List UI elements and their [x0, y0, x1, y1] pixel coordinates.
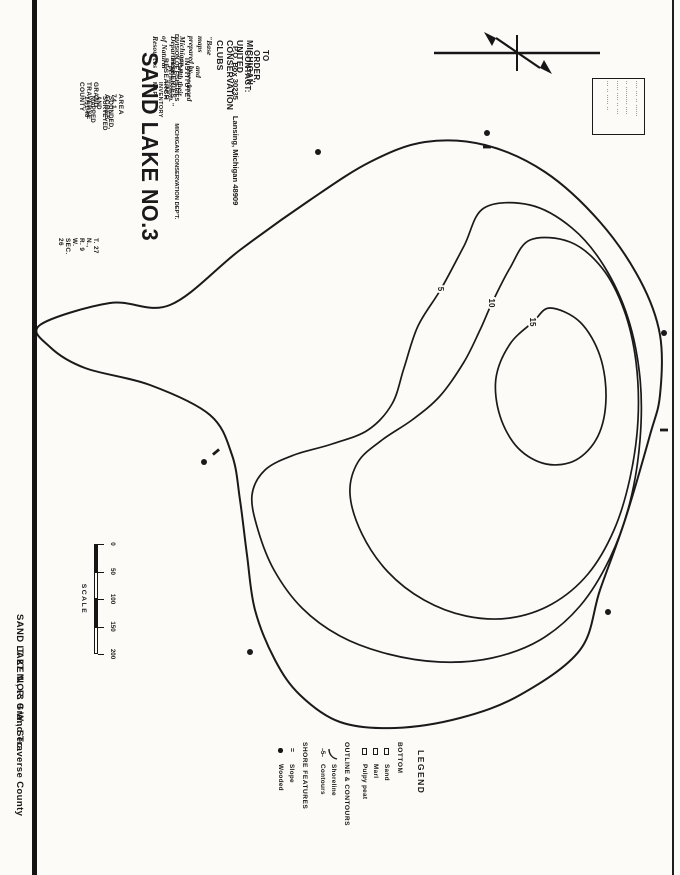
bottom-type-square-icon — [373, 748, 379, 755]
depth-contour-15ft — [495, 308, 606, 465]
slope-shore-dash — [660, 429, 668, 432]
scale-tick-mark — [98, 572, 104, 573]
stamp-line: ····· ···· ·· ··· — [612, 81, 622, 132]
contour-line-icon: –5– — [320, 748, 326, 757]
legend-item: –5–Contours — [317, 748, 328, 867]
scale-bar-segment — [94, 627, 98, 655]
scale-tick-mark — [98, 544, 104, 545]
legend-section-heading: OUTLINE & CONTOURS — [343, 742, 350, 867]
wooded-shore-dot — [201, 459, 207, 465]
wooded-dot-icon — [278, 748, 283, 753]
slope-shore-dash — [212, 448, 220, 455]
shoreline-curve-icon — [329, 748, 339, 761]
legend-title: LEGEND — [416, 750, 426, 867]
stamp-line: ·· ········· ···· — [622, 81, 632, 132]
north-arrow-needle-head — [540, 60, 552, 74]
lake-title: SAND LAKE NO.3 — [136, 52, 163, 241]
scale-bar-segment — [94, 572, 98, 600]
scale-tick-mark — [98, 599, 104, 600]
legend-item: =Slope — [286, 748, 297, 867]
order-contact-pobox: P.O. Box 30235 — [231, 46, 240, 100]
division-name: DIVISION OF FISHERIES — [173, 34, 179, 101]
contour-depth-label: 10 — [487, 299, 496, 308]
scale-bar-segment — [94, 599, 98, 627]
stamp-line: ··· ·· ····· ·· — [602, 81, 612, 132]
legend-section-heading: SHORE FEATURES — [301, 742, 308, 867]
order-contact-address: P.O. Box 30235Lansing, Michigan 48909 — [231, 46, 240, 205]
legend-item: Sand — [381, 748, 392, 867]
legend-section-heading: BOTTOM — [396, 742, 403, 867]
legend-item: Pulpy peat — [359, 748, 370, 867]
order-contact-city: Lansing, Michigan 48909 — [231, 116, 240, 205]
wooded-shore-dot — [661, 330, 667, 336]
legend-item-label: Wooded — [277, 764, 284, 791]
county-label: GRAND TRAVERSE COUNTY — [78, 82, 99, 120]
scale-bar-segment — [94, 544, 98, 572]
scale-tick-value: 50 — [109, 568, 116, 575]
wooded-shore-dot — [605, 609, 611, 615]
scanned-map-page: 51015 SAND LAKE NO.3 Grand Traverse Coun… — [0, 0, 680, 875]
legend-item-label: Marl — [372, 764, 379, 778]
legend-item-label: Sand — [383, 764, 390, 781]
legend-item: Marl — [370, 748, 381, 867]
scale-label: SCALE — [80, 584, 87, 615]
depth-contour-10ft — [350, 237, 639, 619]
contour-depth-label: 5 — [436, 287, 445, 292]
depth-contour-5ft — [252, 203, 642, 663]
caption-township: T. 27 N., R. 9 W., Sec. — [14, 648, 25, 751]
legend-item-label: Contours — [319, 764, 326, 795]
bottom-type-square-icon — [384, 748, 390, 755]
legend-item-label: Pulpy peat — [361, 764, 368, 799]
legend-item: Wooded — [275, 748, 286, 867]
contour-depth-label: 15 — [528, 318, 537, 327]
north-arrow — [422, 28, 612, 80]
slope-dash-icon: = — [288, 748, 295, 752]
slope-shore-dash — [483, 146, 491, 149]
department-name: MICHIGAN CONSERVATION DEP'T. — [173, 123, 179, 219]
scale-tick-value: 200 — [109, 649, 116, 659]
north-arrow-needle-tail — [484, 32, 496, 46]
legend-item-label: Shoreline — [330, 764, 337, 796]
sheet-border-top — [672, 0, 674, 875]
legend-item: Shoreline — [328, 748, 339, 867]
map-sheet: 51015 SAND LAKE NO.3 Grand Traverse Coun… — [0, 0, 680, 875]
bottom-type-square-icon — [362, 748, 368, 755]
stamp-box: ···· ··· ·· ······ ·· ········· ···· ···… — [592, 78, 645, 135]
legend: LEGEND BOTTOMSandMarlPulpy peatOUTLINE &… — [275, 742, 426, 867]
scale-bar: SCALE 050100150200 — [72, 541, 120, 657]
legend-body: BOTTOMSandMarlPulpy peatOUTLINE & CONTOU… — [275, 742, 403, 867]
scale-tick-mark — [98, 627, 104, 628]
township-label: T. 27 N., R. 9 W. SEC. 26 — [57, 238, 99, 255]
wooded-shore-dot — [484, 130, 490, 136]
division-department-row: DIVISION OF FISHERIESMICHIGAN CONSERVATI… — [173, 34, 179, 219]
scale-tick-value: 0 — [109, 542, 116, 545]
stamp-line: ···· ··· ·· ······ — [631, 81, 641, 132]
scale-tick-value: 100 — [109, 594, 116, 604]
wooded-shore-dot — [247, 649, 253, 655]
wooded-shore-dot — [315, 149, 321, 155]
scale-tick-value: 150 — [109, 621, 116, 631]
legend-item-label: Slope — [288, 764, 295, 783]
sheet-border-bottom — [32, 0, 37, 875]
scale-tick-mark — [98, 654, 104, 655]
